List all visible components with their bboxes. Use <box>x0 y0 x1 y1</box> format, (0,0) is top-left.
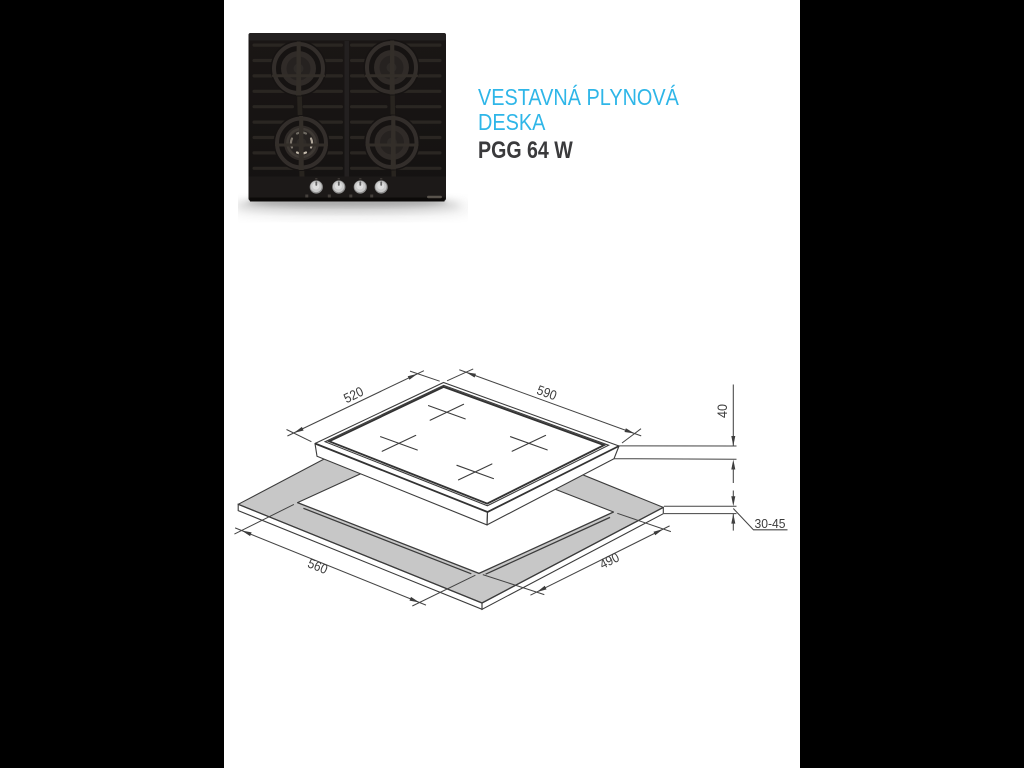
svg-text:560: 560 <box>306 556 330 577</box>
svg-text:40: 40 <box>715 404 730 418</box>
svg-text:30-45: 30-45 <box>755 516 786 531</box>
svg-text:490: 490 <box>597 550 622 572</box>
svg-text:520: 520 <box>341 384 366 406</box>
svg-text:590: 590 <box>535 382 559 403</box>
